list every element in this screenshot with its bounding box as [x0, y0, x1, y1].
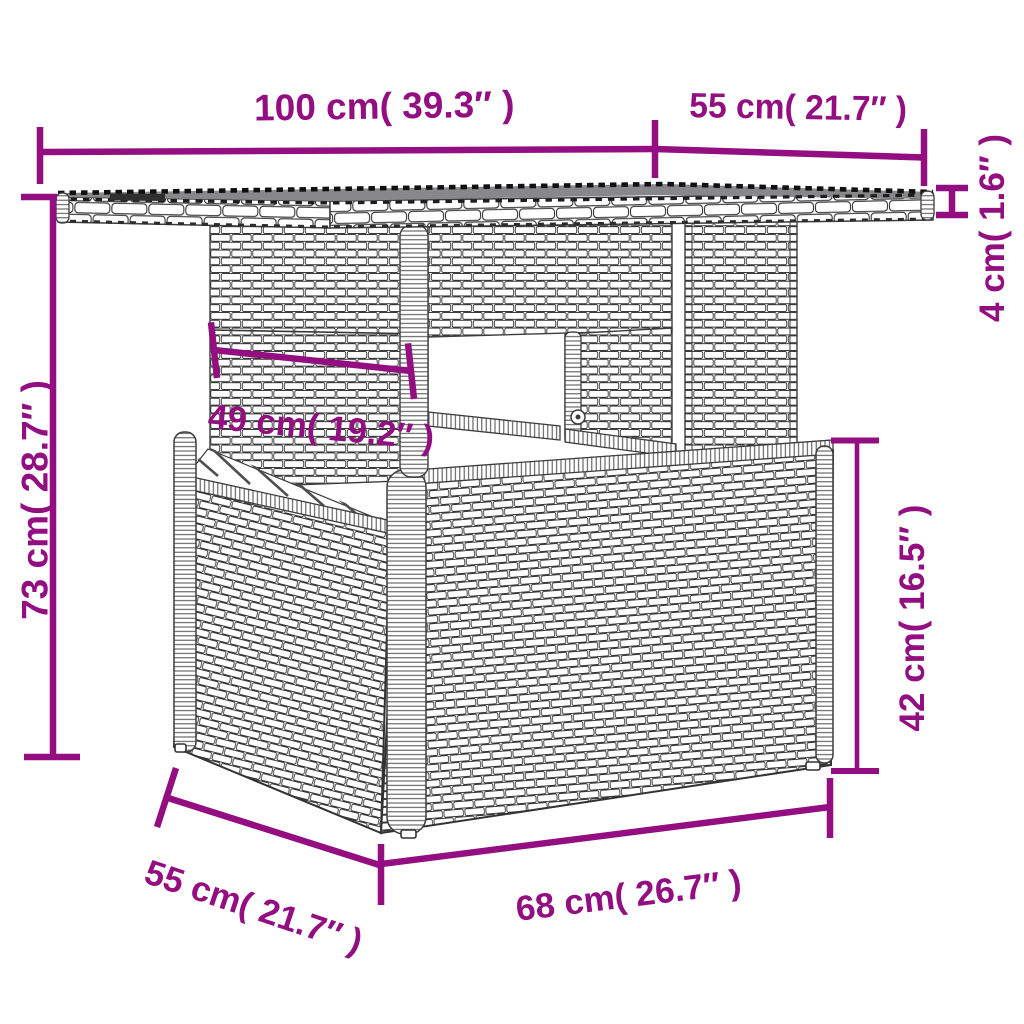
- svg-text:55 cm( 21.7″ ): 55 cm( 21.7″ ): [689, 86, 907, 129]
- svg-text:4 cm( 1.6″ ): 4 cm( 1.6″ ): [973, 134, 1012, 322]
- svg-text:42 cm( 16.5″ ): 42 cm( 16.5″ ): [893, 505, 932, 732]
- svg-text:73 cm( 28.7″ ): 73 cm( 28.7″ ): [15, 380, 56, 620]
- svg-text:100 cm( 39.3″ ): 100 cm( 39.3″ ): [254, 83, 515, 128]
